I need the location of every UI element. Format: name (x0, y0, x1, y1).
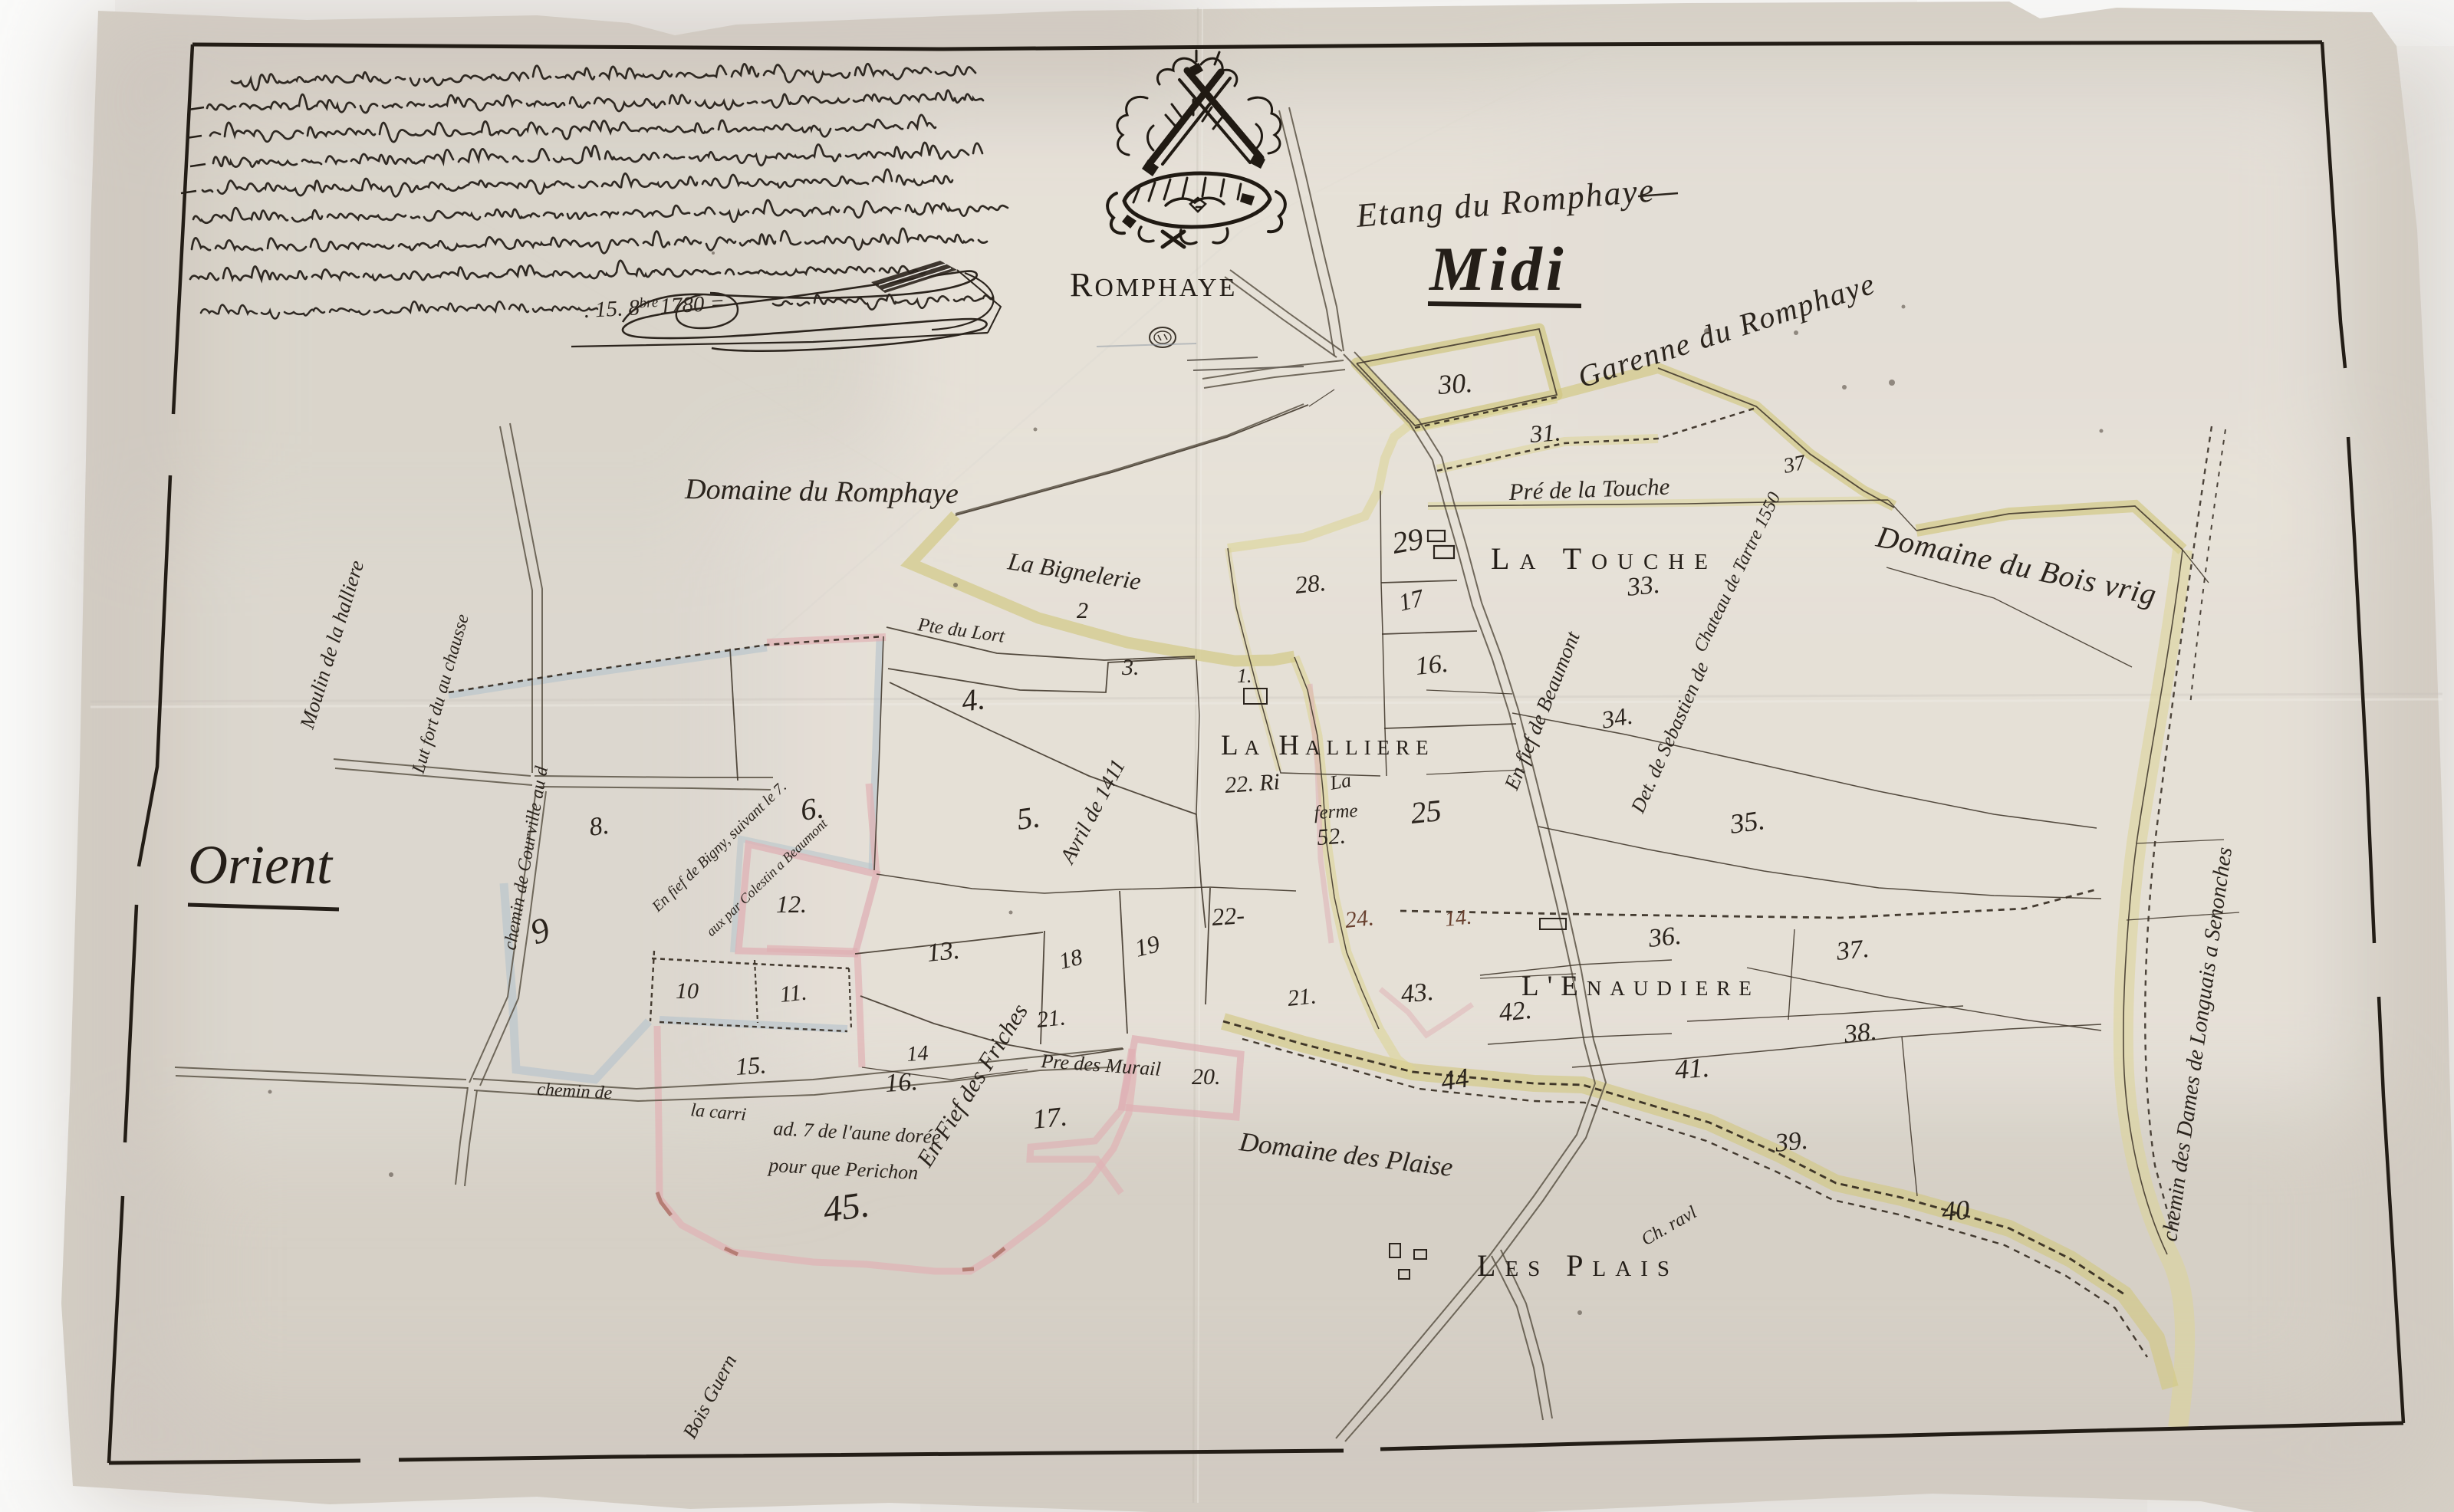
svg-text:38.: 38. (1842, 1017, 1878, 1049)
svg-text:4.: 4. (959, 681, 987, 718)
svg-text:52.: 52. (1316, 823, 1347, 850)
svg-text:31.: 31. (1528, 418, 1561, 448)
svg-text:40: 40 (1941, 1195, 1971, 1227)
svg-text:14.: 14. (1443, 905, 1472, 931)
svg-text:ferme: ferme (1314, 800, 1358, 823)
svg-text:45.: 45. (821, 1184, 872, 1231)
svg-text:36.: 36. (1646, 922, 1683, 953)
svg-text:29: 29 (1390, 521, 1426, 560)
svg-text:44: 44 (1439, 1062, 1471, 1096)
svg-text:24.: 24. (1344, 905, 1375, 933)
svg-text:35.: 35. (1728, 804, 1767, 840)
svg-text:3.: 3. (1121, 655, 1140, 680)
svg-text:6.: 6. (798, 790, 826, 827)
svg-text:37.: 37. (1834, 935, 1870, 966)
svg-text:10: 10 (676, 978, 699, 1004)
svg-text:20.: 20. (1192, 1064, 1221, 1090)
svg-text:17.: 17. (1031, 1100, 1069, 1134)
svg-text:Midi: Midi (1428, 234, 1567, 304)
svg-text:1.: 1. (1237, 665, 1252, 687)
svg-text:Pré de la Touche: Pré de la Touche (1508, 473, 1670, 505)
svg-text:34.: 34. (1599, 701, 1635, 734)
svg-text:Domaine du Romphaye: Domaine du Romphaye (684, 473, 959, 510)
svg-text:22. Ri: 22. Ri (1224, 769, 1281, 798)
svg-text:16.: 16. (884, 1067, 919, 1098)
svg-text:11.: 11. (778, 979, 808, 1007)
svg-text:8.: 8. (587, 811, 610, 842)
svg-text:33.: 33. (1625, 570, 1661, 602)
svg-text:14: 14 (906, 1041, 929, 1067)
svg-text:16.: 16. (1414, 649, 1449, 681)
svg-text:42.: 42. (1498, 996, 1533, 1027)
svg-text:2: 2 (1077, 598, 1088, 623)
svg-text:41.: 41. (1674, 1052, 1711, 1085)
svg-text:Orient: Orient (188, 834, 334, 896)
svg-text:15.: 15. (735, 1050, 767, 1080)
svg-text:21.: 21. (1286, 983, 1317, 1011)
svg-text:5.: 5. (1015, 799, 1042, 837)
svg-text:28.: 28. (1294, 568, 1327, 599)
svg-text:13.: 13. (926, 936, 961, 968)
svg-text:chemin de: chemin de (537, 1080, 613, 1103)
svg-text:39.: 39. (1773, 1126, 1809, 1158)
svg-text:21.: 21. (1035, 1004, 1067, 1033)
svg-text:22-: 22- (1211, 901, 1245, 931)
svg-text:La: La (1327, 769, 1353, 795)
svg-text:30.: 30. (1436, 367, 1474, 400)
svg-text:25: 25 (1409, 793, 1442, 830)
svg-text:43.: 43. (1400, 978, 1435, 1009)
svg-text:12.: 12. (776, 890, 807, 918)
